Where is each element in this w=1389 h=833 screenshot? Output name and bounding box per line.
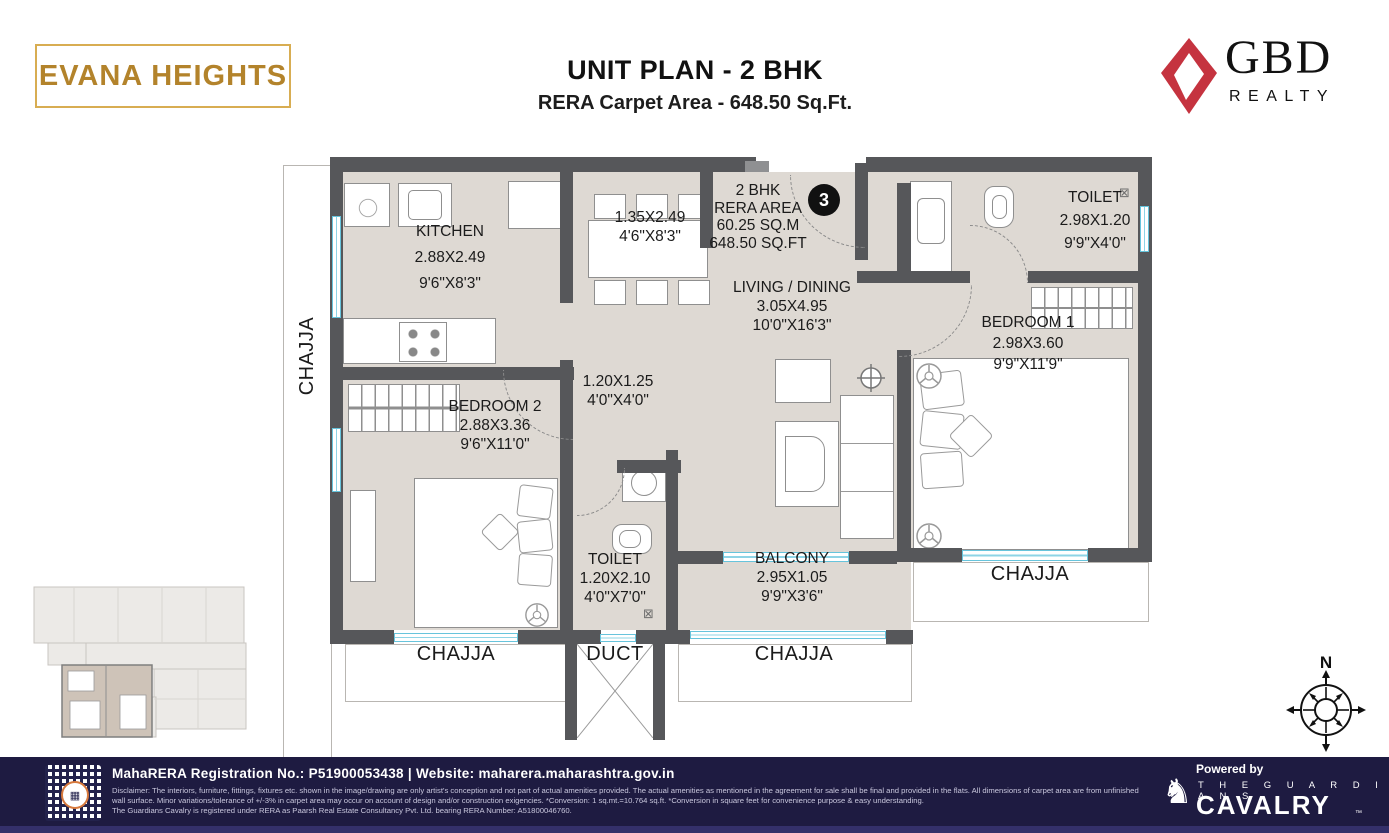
fan-icon (915, 522, 943, 550)
dresser (350, 490, 376, 582)
wall (653, 632, 665, 740)
room-label-balcony: BALCONY 2.95X1.05 9'9"X3'6" (722, 549, 862, 606)
room-dim-m: 2.98X3.60 (963, 333, 1093, 354)
wall (518, 630, 570, 644)
room-dim-m: 3.05X4.95 (717, 297, 867, 316)
area-line: 2 BHK (693, 182, 823, 200)
stove (399, 322, 447, 362)
gbd-brand-name: GBD (1225, 30, 1332, 85)
room-dim-ft: 4'0"X7'0" (573, 588, 657, 607)
chajja-label: CHAJJA (913, 565, 1147, 584)
wc-bowl (619, 530, 641, 548)
fan-icon (524, 602, 550, 628)
room-dim-ft: 9'6"X11'0" (425, 435, 565, 454)
compass-north-label: N (1320, 653, 1332, 672)
pillow (516, 518, 553, 553)
balcony-railing (690, 631, 886, 639)
window (962, 550, 1088, 561)
wall (866, 157, 1152, 172)
room-label-kitchen: KITCHEN 2.88X2.49 9'6"X8'3" (375, 219, 525, 297)
room-name: LIVING / DINING (717, 278, 867, 297)
wall (330, 157, 756, 172)
room-label-bedroom1: BEDROOM 1 2.98X3.60 9'9"X11'9" (963, 312, 1093, 375)
wc-bowl (992, 195, 1007, 219)
sofa (840, 395, 894, 539)
dining-chair (636, 280, 668, 305)
wall (897, 183, 911, 273)
powered-by-label: Powered by (1196, 762, 1263, 776)
wall (905, 548, 962, 562)
pillow (517, 553, 553, 587)
window (600, 634, 636, 642)
room-dim-m: 1.20X2.10 (573, 569, 657, 588)
page-title: UNIT PLAN - 2 BHK (395, 55, 995, 86)
room-name: BEDROOM 2 (425, 397, 565, 416)
chajja-label: CHAJJA (298, 286, 318, 426)
key-plan-highlighted-unit (62, 665, 152, 737)
side-table (775, 359, 831, 403)
room-name: TOILET (1040, 186, 1150, 209)
footer-band (0, 826, 1389, 833)
room-dim-ft: 4'0"X4'0" (576, 391, 660, 410)
gbd-diamond-icon (1158, 36, 1220, 121)
disclaimer-text: Disclaimer: The interiors, furniture, fi… (112, 786, 1147, 805)
window (332, 428, 341, 492)
fan-icon (915, 362, 943, 390)
page-subtitle: RERA Carpet Area - 648.50 Sq.Ft. (395, 92, 995, 115)
trademark-symbol: ™ (1355, 810, 1362, 817)
rera-registration-text: MahaRERA Registration No.: P51900053438 … (112, 766, 675, 781)
consultancy-rera-text: The Guardians Cavalry is registered unde… (112, 806, 1147, 815)
rera-area-block: 2 BHK RERA AREA 60.25 SQ.M 648.50 SQ.FT (693, 182, 823, 252)
wc-toilet (984, 186, 1014, 228)
window (394, 633, 518, 642)
vent-icon: ⊠ (643, 607, 654, 622)
tv-unit (775, 421, 839, 507)
wall (560, 172, 573, 303)
wall (666, 450, 678, 644)
room-dim-m: 2.98X1.20 (1040, 209, 1150, 232)
room-dim-m: 2.88X2.49 (375, 245, 525, 271)
dining-chair (594, 280, 626, 305)
cavalry-knight-icon: ♞ (1162, 775, 1192, 809)
room-label-toilet2: TOILET 1.20X2.10 4'0"X7'0" (573, 550, 657, 607)
wall (745, 161, 769, 172)
sink-bowl (408, 190, 442, 220)
room-dim-ft: 9'6"X8'3" (375, 271, 525, 297)
pillow (516, 484, 554, 520)
room-name: BEDROOM 1 (963, 312, 1093, 333)
room-name: BALCONY (722, 549, 862, 568)
wall (886, 630, 913, 644)
unit-plan-page: EVANA HEIGHTS UNIT PLAN - 2 BHK RERA Car… (0, 0, 1389, 833)
washbasin (917, 198, 945, 244)
cavalry-wordmark: CAVALRY (1196, 790, 1331, 821)
room-label-toilet1: TOILET 2.98X1.20 9'9"X4'0" (1040, 186, 1150, 255)
room-dim-m: 2.88X3.36 (425, 416, 565, 435)
room-label-living: LIVING / DINING 3.05X4.95 10'0"X16'3" (717, 278, 867, 335)
room-dim-ft: 9'9"X3'6" (722, 587, 862, 606)
duct-label: DUCT (577, 645, 653, 664)
washbasin (631, 470, 657, 496)
room-label-passage: 1.20X1.25 4'0"X4'0" (576, 372, 660, 410)
area-line: 648.50 SQ.FT (693, 235, 823, 253)
key-plan (28, 583, 260, 755)
room-dim-ft: 9'9"X4'0" (1040, 232, 1150, 255)
chajja-label: CHAJJA (678, 645, 910, 664)
tv-screen (785, 436, 825, 492)
room-name: TOILET (573, 550, 657, 569)
wall (671, 551, 723, 564)
evana-heights-logo-text: EVANA HEIGHTS (39, 60, 287, 93)
ceiling-light-icon (855, 362, 887, 394)
evana-heights-logo: EVANA HEIGHTS (35, 44, 291, 108)
dining-chair (678, 280, 710, 305)
wall (1028, 271, 1152, 283)
gbd-brand-sub: REALTY (1229, 88, 1335, 106)
chajja-left (283, 165, 332, 762)
wall (897, 350, 911, 562)
room-name: KITCHEN (375, 219, 525, 245)
compass-icon: N (1286, 652, 1366, 752)
room-dim-m: 1.20X1.25 (576, 372, 660, 391)
room-dim-ft: 9'9"X11'9" (963, 354, 1093, 375)
qr-center-icon: ▦ (61, 781, 89, 809)
room-dim-m: 2.95X1.05 (722, 568, 862, 587)
area-line: 60.25 SQ.M (693, 217, 823, 235)
room-label-bedroom2: BEDROOM 2 2.88X3.36 9'6"X11'0" (425, 397, 565, 454)
chajja-label: CHAJJA (345, 645, 567, 664)
wall (857, 271, 970, 283)
wall (342, 630, 394, 644)
room-dim-ft: 10'0"X16'3" (717, 316, 867, 335)
area-line: RERA AREA (693, 200, 823, 218)
window (332, 216, 341, 318)
pillow (920, 451, 964, 490)
